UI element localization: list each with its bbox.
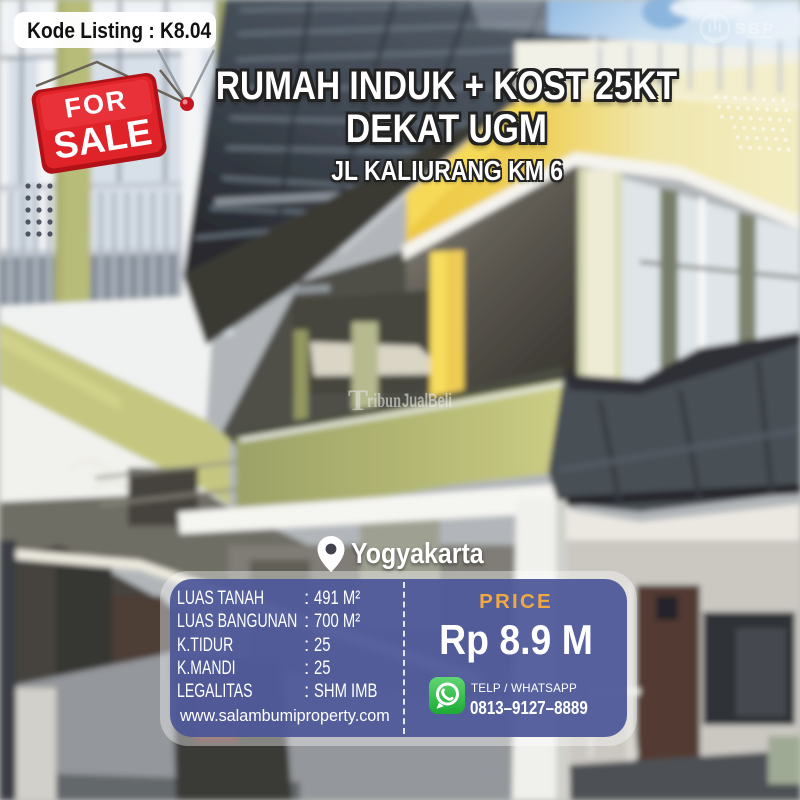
svg-text:SBP: SBP (735, 21, 775, 38)
svg-text:T: T (348, 384, 368, 417)
svg-text:ribun: ribun (367, 390, 401, 412)
svg-text:JualBeli: JualBeli (402, 391, 452, 412)
